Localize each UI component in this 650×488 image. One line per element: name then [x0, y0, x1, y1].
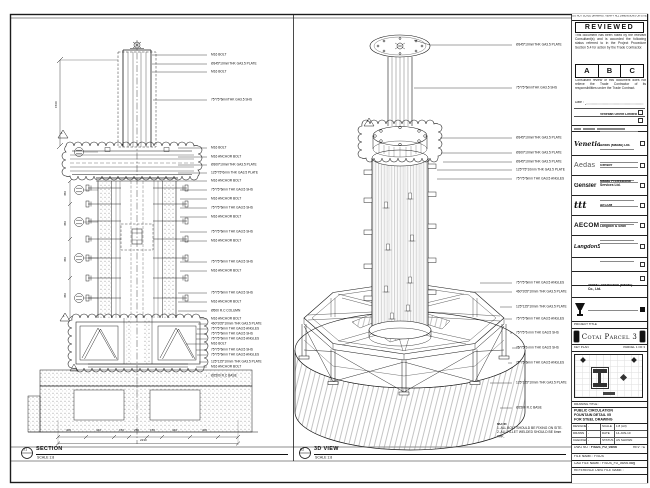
aecom-logo: AECOM — [574, 222, 600, 229]
drawn-label: DRAWN — [573, 432, 584, 435]
contractor-name: Yadea Construction (Macau) Co., Ltd. — [588, 284, 632, 291]
date-line — [585, 101, 643, 104]
checkbox-icon — [638, 118, 643, 123]
key-plan-thumbnail — [574, 354, 643, 398]
checkbox-icon — [640, 183, 645, 188]
drawing-sheet: M16 BOLTØ345*10mmTHK GA3.5 PLATEM16 BOLT… — [0, 0, 650, 488]
consultant-name: Venetian Orient Limited — [600, 113, 637, 116]
reviewed-stamp: REVIEWED This document has been noted by… — [572, 21, 647, 126]
project-title-label: PROJECT TITLE — [574, 323, 597, 326]
reviewed-body: This document has been noted by the rele… — [575, 34, 646, 50]
checkbox-icon — [638, 110, 643, 115]
iso-view-linework — [295, 35, 525, 450]
date-label: Date : — [575, 101, 584, 105]
warning-text: DO NOT SCALE DRAWING. VERIFY ALL DIMENSI… — [572, 15, 647, 18]
ornament-icon — [640, 331, 645, 342]
title-block-fields: DESIGNED - SCALE 1:8 (A3) DRAWN - DATE 1… — [572, 424, 647, 445]
checkbox-icon — [640, 163, 645, 168]
project-title-row: Cotai Parcel 3 — [572, 329, 647, 345]
checked-value: - — [588, 439, 589, 442]
key-plan-bar: KEY PLANPARCEL 1 OF 3 — [572, 345, 647, 352]
gensler-logo: Gensler — [574, 183, 600, 189]
consultant-name: Macau Professional Services Ltd. — [600, 180, 631, 187]
consultant-row-langdon-seah: LangdonSeah Langdon & Seah — [572, 236, 647, 258]
ornament-icon — [574, 331, 579, 342]
scale-value: 1:8 (A3) — [616, 425, 627, 428]
reviewed-title: REVIEWED — [575, 22, 644, 33]
grade-b: B — [598, 65, 621, 77]
mps-logo: ttt — [574, 201, 600, 211]
drawing-title-label: DRAWING TITLE : — [574, 403, 599, 406]
cad-file-row: CAD FILE NAME : F/SUS_FD_05/06.dwg — [572, 461, 647, 468]
drawing-linework — [0, 0, 650, 488]
reference-dwg-label: REFERENCE DWG FILE NAME : — [574, 469, 624, 472]
status-label: STATUS — [602, 439, 613, 442]
consultant-name: Gensler — [600, 164, 612, 167]
rev-value: C — [643, 446, 645, 450]
reviewed-disclaimer: Consultant review of this document does … — [575, 79, 646, 91]
bottom-blank — [572, 475, 647, 483]
reference-dwg-row: REFERENCE DWG FILE NAME : — [572, 468, 647, 475]
venetian-logo: Venetian — [574, 140, 600, 148]
no-scale-warning: DO NOT SCALE DRAWING. VERIFY ALL DIMENSI… — [572, 14, 647, 21]
grade-a: A — [576, 65, 598, 77]
date-label: DATE — [602, 432, 610, 435]
empty-consultant-row — [572, 258, 647, 272]
designed-label: DESIGNED — [573, 425, 587, 428]
consultant-name: Aedas (Macau) Ltd. — [600, 144, 630, 147]
dwg-no-row: DWG NO : F/SUS_FD_05/06 REV : C — [572, 445, 647, 454]
revision-text-bar — [574, 128, 581, 130]
address-text-bar — [588, 310, 638, 311]
drawn-value: - — [588, 432, 589, 435]
address-text-bar — [600, 131, 638, 132]
consultant-name: Langdon & Seah — [600, 225, 626, 228]
key-plan — [572, 352, 647, 402]
checkbox-icon — [640, 244, 645, 249]
section-view-linework — [28, 40, 258, 446]
project-title: Cotai Parcel 3 — [582, 333, 638, 341]
file-name-row: FILE NAME : F/SUS — [572, 454, 647, 461]
cert-mark — [640, 307, 645, 312]
checked-label: CHECKED — [573, 439, 587, 442]
key-plan-core — [591, 367, 609, 389]
key-plan-fountain-mark — [620, 374, 627, 381]
dwg-no-value: F/SUS_FD_05/06 — [591, 446, 617, 450]
address-text-bar — [600, 243, 638, 244]
address-text-bar — [600, 222, 638, 223]
ornament-icon — [580, 357, 586, 363]
file-name-value: F/SUS — [594, 455, 604, 458]
status-value: AS SHOWN — [616, 439, 632, 442]
dwg-no-label: DWG NO : — [574, 446, 590, 450]
checkbox-icon — [640, 141, 645, 146]
key-plan-parcel: PARCEL 1 OF 3 — [623, 346, 645, 349]
date-value: 14-JUN-10 — [616, 432, 631, 435]
consultant-name: AECOM — [600, 204, 612, 207]
scale-label: SCALE — [602, 425, 612, 428]
file-name-label: FILE NAME : — [574, 455, 593, 458]
ornament-icon — [631, 357, 637, 363]
project-title-bar: PROJECT TITLE — [572, 322, 647, 329]
aedas-logo: Aedas — [574, 162, 600, 169]
langdon-seah-logo: LangdonSeah — [574, 244, 600, 250]
checkbox-icon — [640, 262, 645, 267]
checkbox-icon — [640, 223, 645, 228]
section-callout-leaders — [152, 55, 207, 376]
revision-text-bar — [583, 128, 595, 130]
key-plan-entry — [603, 392, 615, 395]
review-status-grades: A B C — [575, 64, 644, 78]
cad-file-value: F/SUS_FD_05/06.dwg — [602, 462, 635, 465]
checkbox-icon — [640, 276, 645, 281]
contractor-row: Yadea Construction (Macau) Co., Ltd. — [572, 298, 647, 322]
contractor-logo-icon — [574, 302, 586, 318]
checkbox-icon — [640, 203, 645, 208]
reviewed-date-row: Date : — [575, 101, 644, 108]
title-block: DO NOT SCALE DRAWING. VERIFY ALL DIMENSI… — [572, 14, 647, 483]
designed-value: - — [588, 425, 589, 428]
drawing-title-line: FOR STEEL DRAWING — [574, 418, 645, 423]
grade-c: C — [620, 65, 643, 77]
rev-label: REV : — [633, 446, 642, 450]
key-plan-label: KEY PLAN — [574, 346, 589, 349]
drawing-title: PUBLIC CIRCULATION FOUNTAIN DETAIL 05 FO… — [572, 408, 647, 424]
cad-file-label: CAD FILE NAME : — [574, 462, 601, 465]
